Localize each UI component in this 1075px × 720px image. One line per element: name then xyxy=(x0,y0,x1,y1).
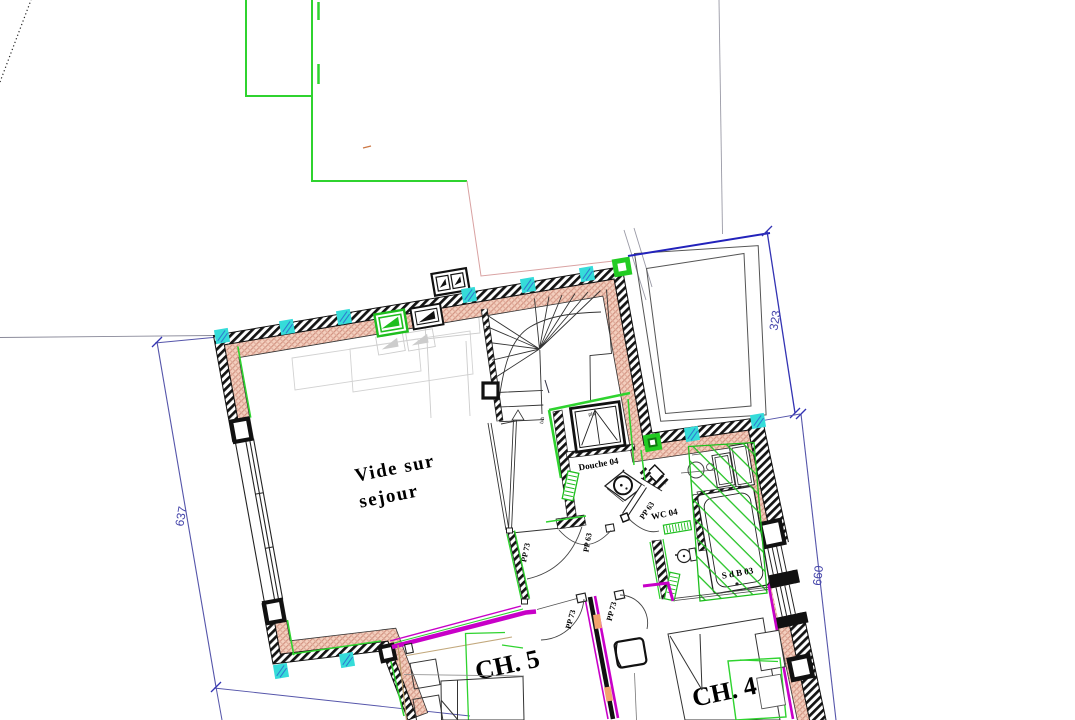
svg-text:sejour: sejour xyxy=(357,481,420,513)
svg-text:CH. 4: CH. 4 xyxy=(689,671,759,713)
svg-text:PP 73: PP 73 xyxy=(564,609,578,630)
svg-text:Vide sur: Vide sur xyxy=(353,451,437,487)
svg-text:PP 63: PP 63 xyxy=(581,532,593,553)
svg-text:323: 323 xyxy=(767,309,784,331)
svg-text:637: 637 xyxy=(172,505,189,527)
svg-text:660: 660 xyxy=(810,565,826,587)
svg-text:PP 73: PP 73 xyxy=(605,601,619,622)
svg-text:WC 04: WC 04 xyxy=(650,506,679,521)
svg-text:pla: pla xyxy=(588,411,596,418)
svg-text:Douche 04: Douche 04 xyxy=(578,456,620,473)
svg-text:CH. 5: CH. 5 xyxy=(472,644,542,686)
svg-text:b/b: b/b xyxy=(539,416,546,424)
